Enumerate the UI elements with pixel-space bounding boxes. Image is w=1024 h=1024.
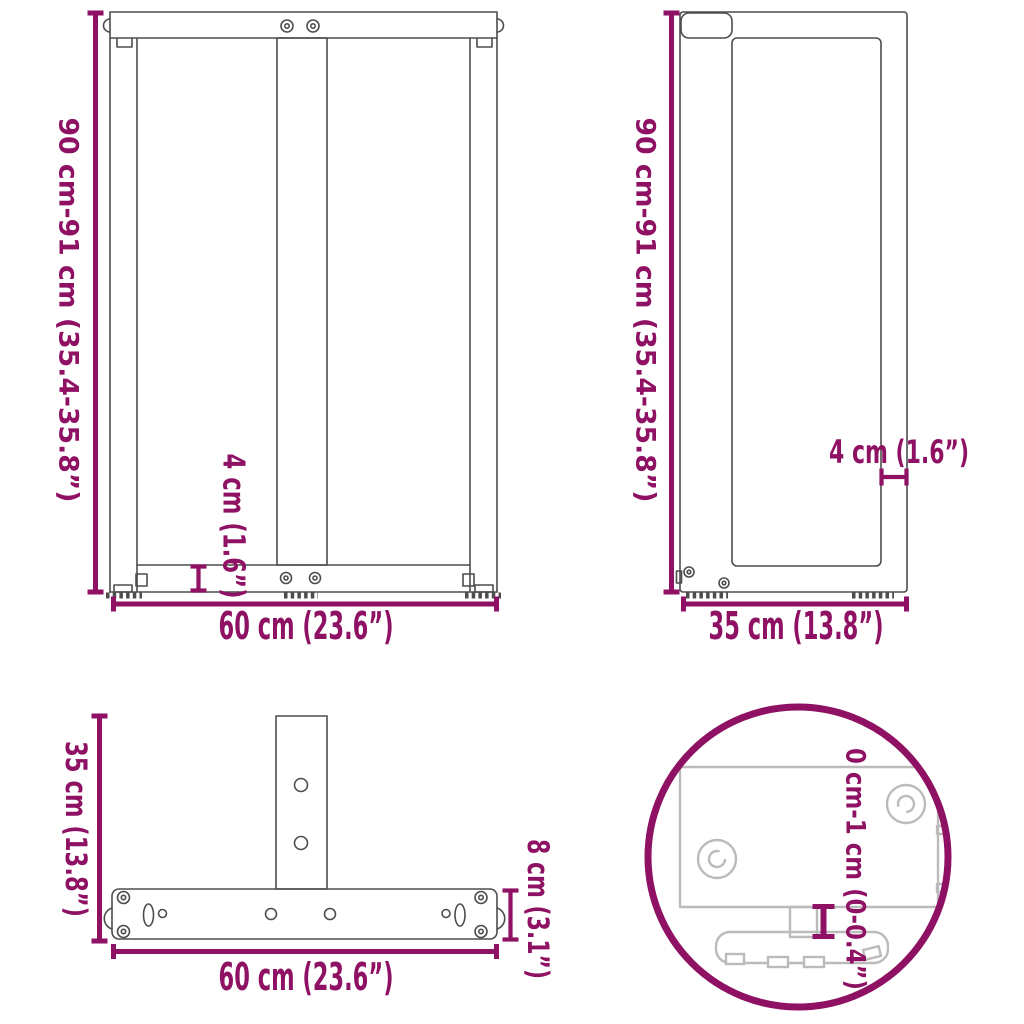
corner-screw-center <box>121 929 125 933</box>
post-notch-right <box>477 38 492 47</box>
detail-view: 0 cm-1 cm (0-0.4”) <box>648 707 948 1007</box>
foot-pad-right <box>475 585 493 592</box>
front-view: 90 cm-91 cm (35.4-35.8”) 4 cm (1.6”) 60 … <box>53 12 504 648</box>
top-plate <box>110 12 497 38</box>
corner-screw <box>475 892 487 904</box>
plate-end-tab-right <box>497 19 504 32</box>
edge-tab <box>677 571 682 583</box>
center-hole <box>266 909 277 920</box>
leg-inner-outline <box>732 38 881 566</box>
screw-hole <box>307 20 319 32</box>
front-view-dimension-lines <box>88 13 498 612</box>
foot-tooth <box>804 957 824 967</box>
diagram-canvas: 90 cm-91 cm (35.4-35.8”) 4 cm (1.6”) 60 … <box>0 0 1024 1024</box>
crossbar-end-tab-left <box>104 908 112 929</box>
side-view-dimension-lines <box>664 13 908 612</box>
screw-hole <box>310 573 321 584</box>
side-post-thickness-label: 4 cm (1.6”) <box>829 433 969 471</box>
detail-adjustment-range-label: 0 cm-1 cm (0-0.4”) <box>840 748 871 990</box>
side-view-drawing <box>677 12 908 592</box>
corner-screw-center <box>121 895 125 899</box>
screw-mark <box>896 794 917 815</box>
screw-hole-center <box>687 570 691 574</box>
top-depth-label: 35 cm (13.8”) <box>59 741 93 917</box>
front-width-label: 60 cm (23.6”) <box>219 604 394 648</box>
foot-tooth <box>726 954 744 964</box>
stem-hole <box>295 779 308 792</box>
front-height-label: 90 cm-91 cm (35.4-35.8”) <box>53 118 84 503</box>
side-depth-label: 35 cm (13.8”) <box>709 604 884 648</box>
top-view: 35 cm (13.8”) 60 cm (23.6”) 8 cm (3.1”) <box>59 716 555 999</box>
screw-hole-center <box>722 581 726 585</box>
top-plate-end-cap <box>681 13 732 38</box>
center-hole <box>325 909 336 920</box>
front-view-drawing <box>104 12 504 592</box>
top-crossbar-depth-label: 8 cm (3.1”) <box>521 839 555 979</box>
central-post <box>277 38 327 565</box>
crossbar-plate <box>112 889 497 939</box>
screw-hole-center <box>284 576 288 580</box>
corner-screw-center <box>479 895 483 899</box>
screw-hole <box>281 573 292 584</box>
small-hole <box>442 910 450 918</box>
foot-tooth <box>768 957 788 967</box>
corner-screw <box>118 926 130 938</box>
front-foot-bar-height-label: 4 cm (1.6”) <box>216 454 251 599</box>
corner-screw-center <box>479 929 483 933</box>
corner-screw <box>118 892 130 904</box>
small-hole <box>159 910 167 918</box>
crossbar-end-tab-right <box>497 908 505 929</box>
slot-hole-right <box>455 904 465 926</box>
screw-mark <box>709 851 725 867</box>
side-height-label: 90 cm-91 cm (35.4-35.8”) <box>630 118 661 503</box>
stem-hole <box>295 837 308 850</box>
screw-hole-center <box>313 576 317 580</box>
screw-hole <box>719 578 729 588</box>
top-view-drawing <box>104 716 504 939</box>
side-view: 90 cm-91 cm (35.4-35.8”) 4 cm (1.6”) 35 … <box>630 12 970 648</box>
screw-hole <box>281 20 293 32</box>
foot-bar-bracket-right <box>463 574 474 586</box>
post-notch-left <box>117 38 132 47</box>
leg-outline <box>680 12 907 592</box>
foot-pad-left <box>114 585 132 592</box>
top-width-label: 60 cm (23.6”) <box>219 955 394 999</box>
screw-hole-center <box>311 24 315 28</box>
slot-hole-left <box>144 904 154 926</box>
screw-hole-center <box>285 24 289 28</box>
screw-hole <box>887 785 925 823</box>
stem-plate <box>276 716 327 889</box>
foot-bar-corner <box>680 767 938 907</box>
product-dimension-diagram: 90 cm-91 cm (35.4-35.8”) 4 cm (1.6”) 60 … <box>0 0 1024 1024</box>
corner-screw <box>475 926 487 938</box>
screw-hole <box>684 567 694 577</box>
screw-hole <box>698 840 736 878</box>
plate-end-tab-left <box>104 19 111 32</box>
